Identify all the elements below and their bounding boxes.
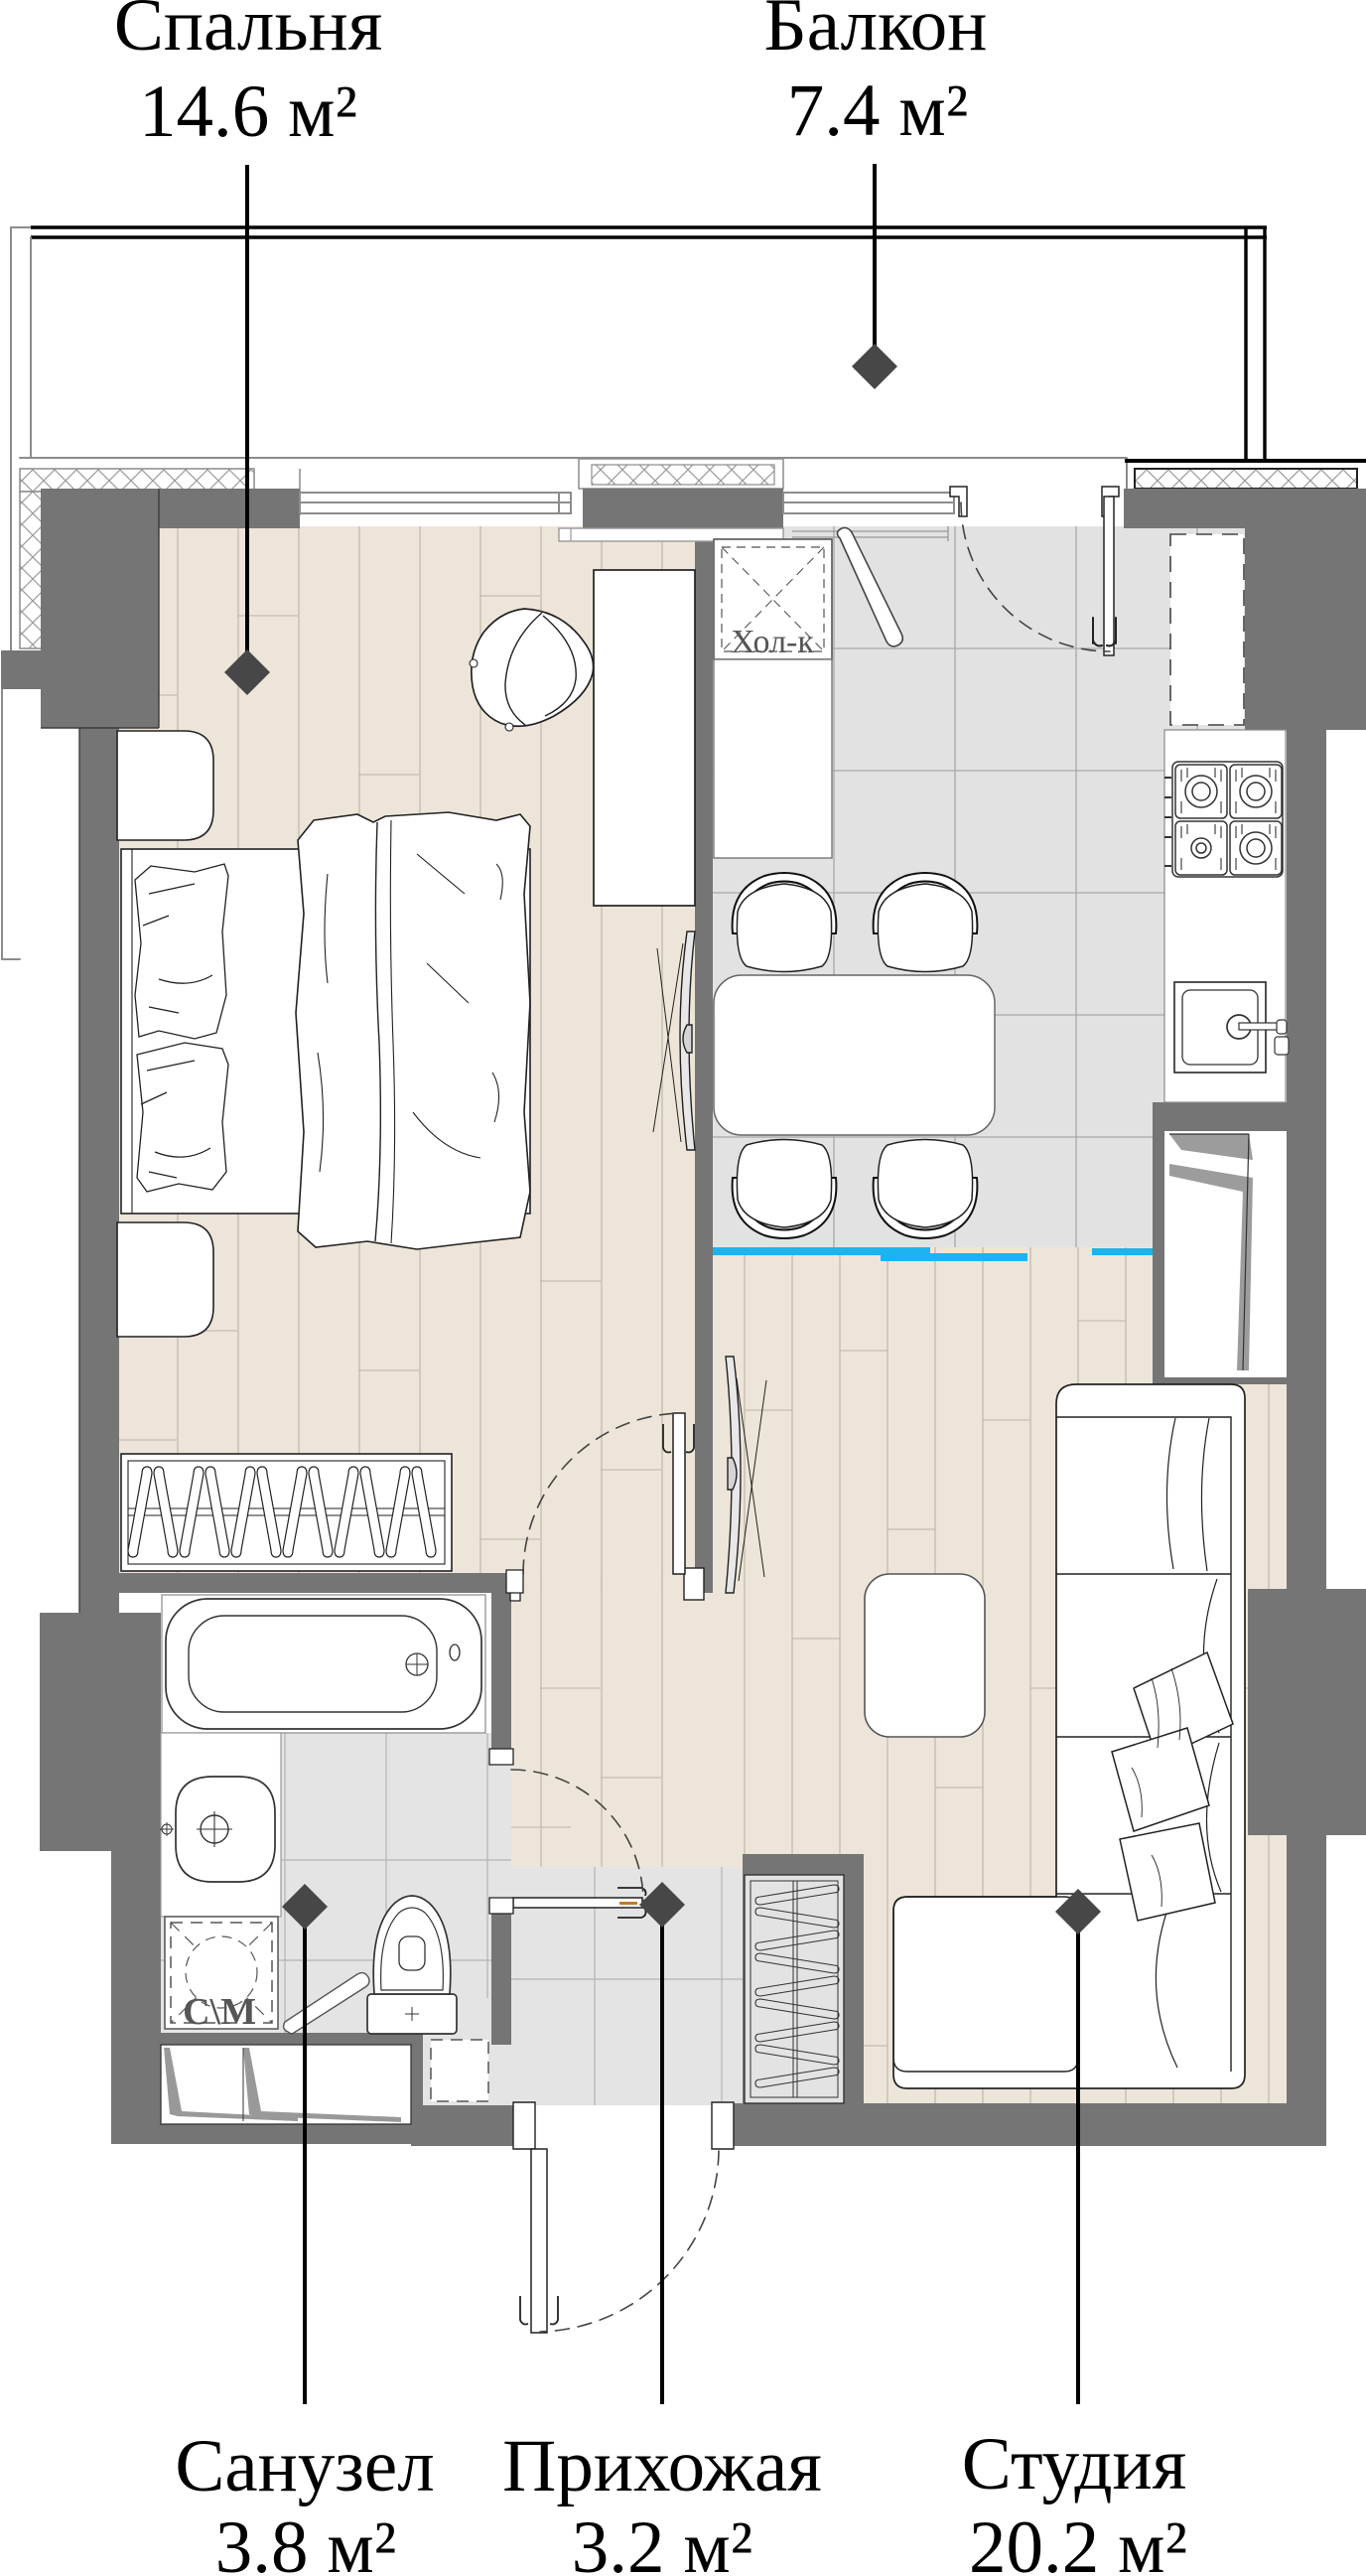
- svg-text:3.8 м²: 3.8 м²: [215, 2506, 396, 2576]
- svg-text:Балкон: Балкон: [764, 0, 988, 67]
- svg-text:3.2 м²: 3.2 м²: [572, 2506, 752, 2576]
- svg-text:7.4 м²: 7.4 м²: [787, 70, 968, 152]
- svg-text:С\М: С\М: [183, 1991, 256, 2033]
- svg-text:Студия: Студия: [962, 2423, 1186, 2505]
- svg-text:Прихожая: Прихожая: [502, 2425, 822, 2507]
- svg-text:14.6 м²: 14.6 м²: [139, 71, 357, 153]
- svg-text:Санузел: Санузел: [175, 2425, 434, 2507]
- svg-text:Хол-к: Хол-к: [731, 624, 814, 660]
- svg-text:20.2 м²: 20.2 м²: [969, 2506, 1187, 2576]
- svg-text:Спальня: Спальня: [114, 0, 382, 67]
